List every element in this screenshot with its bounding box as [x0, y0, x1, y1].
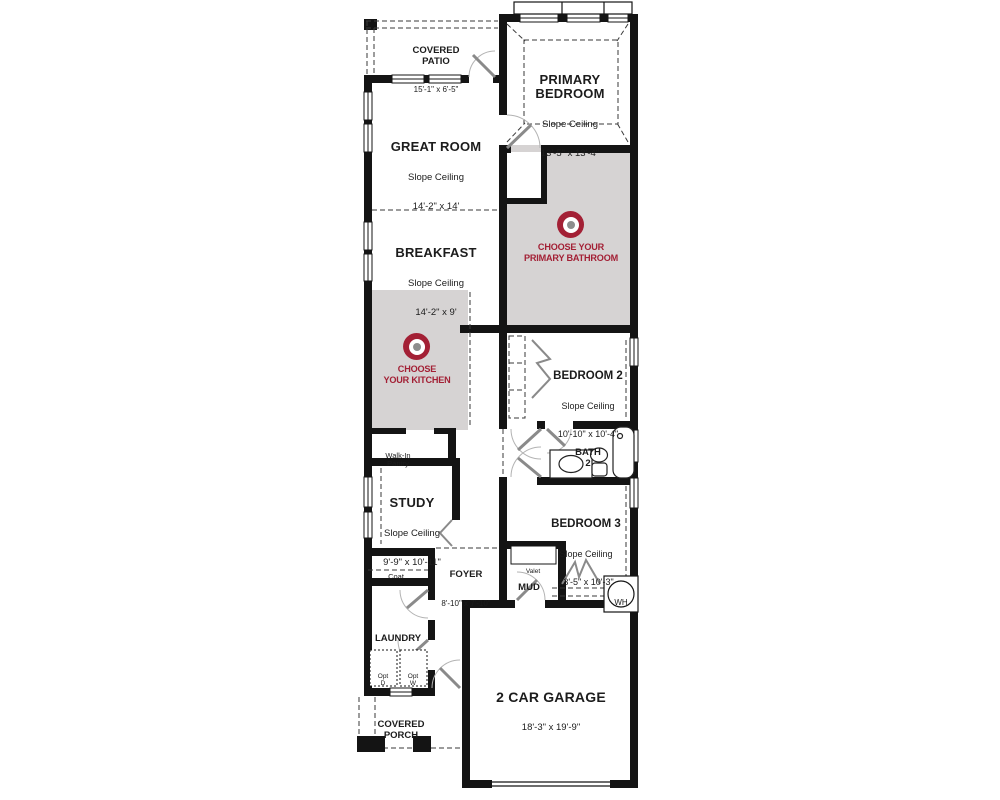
room-label-bath-2: BATH 2: [575, 430, 601, 487]
room-name: COVERED PORCH: [378, 720, 425, 741]
room-name: MUD: [518, 583, 540, 594]
room-ceiling: Slope Ceiling: [391, 172, 482, 183]
room-name: WH: [614, 598, 627, 607]
garage-door: [492, 782, 610, 786]
room-name: STUDY: [383, 496, 441, 510]
room-ceiling: Slope Ceiling: [395, 278, 476, 289]
room-name: COVERED PATIO: [413, 46, 460, 67]
water-heater-label: WH: [614, 589, 627, 616]
room-name: Coat: [388, 573, 404, 581]
room-name: LAUNDRY: [375, 634, 421, 645]
label-opt-washer: Opt W: [408, 655, 418, 705]
room-name: Opt D: [378, 673, 388, 687]
choose-kitchen-label[interactable]: CHOOSE YOUR KITCHEN: [383, 364, 450, 386]
room-dims: 15'-1" x 6'-5": [413, 85, 460, 94]
room-label-mud: MUD: [518, 565, 540, 612]
room-dims: 8'-10" x 7'-10": [441, 599, 490, 608]
room-name: PRIMARY BEDROOM: [535, 73, 604, 101]
room-label-bedroom-3: BEDROOM 3 Slope Ceiling 13'-5" x 10'-3": [551, 500, 621, 606]
room-dims: 13'-5" x 13'-4": [535, 148, 604, 159]
room-ceiling: Slope Ceiling: [535, 119, 604, 130]
room-ceiling: Slope Ceiling: [553, 401, 623, 412]
room-name: BEDROOM 3: [551, 518, 621, 531]
room-label-garage: 2 CAR GARAGE 18'-3" x 19'-9": [496, 672, 606, 751]
target-icon[interactable]: [558, 211, 585, 238]
room-dims: 13'-5" x 10'-3": [551, 577, 621, 588]
room-label-great-room: GREAT ROOM Slope Ceiling 14'-2" x 14': [391, 122, 482, 230]
room-label-breakfast: BREAKFAST Slope Ceiling 14'-2" x 9': [395, 228, 476, 336]
room-name: BEDROOM 2: [553, 370, 623, 383]
room-label-covered-porch: COVERED PORCH: [378, 702, 425, 759]
room-name: FOYER: [441, 570, 490, 581]
floor-plan-canvas: COVERED PATIO 15'-1" x 6'-5" PRIMARY BED…: [0, 0, 1000, 800]
room-label-coat: Coat: [388, 555, 404, 599]
choose-primary-bathroom-cta[interactable]: CHOOSE YOUR PRIMARY BATHROOM: [522, 211, 620, 264]
room-dims: 14'-2" x 9': [395, 307, 476, 318]
room-name: BATH 2: [575, 448, 601, 469]
room-name: GREAT ROOM: [391, 140, 482, 154]
room-dims: 18'-3" x 19'-9": [496, 722, 606, 733]
target-icon[interactable]: [403, 333, 430, 360]
bay-window-outline: [514, 2, 632, 14]
room-label-covered-patio: COVERED PATIO 15'-1" x 6'-5": [413, 28, 460, 112]
room-label-primary-bedroom: PRIMARY BEDROOM Slope Ceiling 13'-5" x 1…: [535, 55, 604, 177]
room-label-foyer: FOYER 8'-10" x 7'-10": [441, 552, 490, 626]
room-name: BREAKFAST: [395, 246, 476, 260]
room-dims: 14'-2" x 14': [391, 201, 482, 212]
choose-kitchen-cta[interactable]: CHOOSE YOUR KITCHEN: [382, 333, 452, 386]
room-ceiling: Slope Ceiling: [551, 549, 621, 560]
label-opt-dryer: Opt D: [378, 655, 388, 705]
room-name: Opt W: [408, 673, 418, 687]
room-name: 2 CAR GARAGE: [496, 690, 606, 704]
choose-primary-bathroom-label[interactable]: CHOOSE YOUR PRIMARY BATHROOM: [524, 242, 618, 264]
room-name: Walk-In Pantry: [385, 452, 410, 468]
room-ceiling: Slope Ceiling: [383, 528, 441, 539]
